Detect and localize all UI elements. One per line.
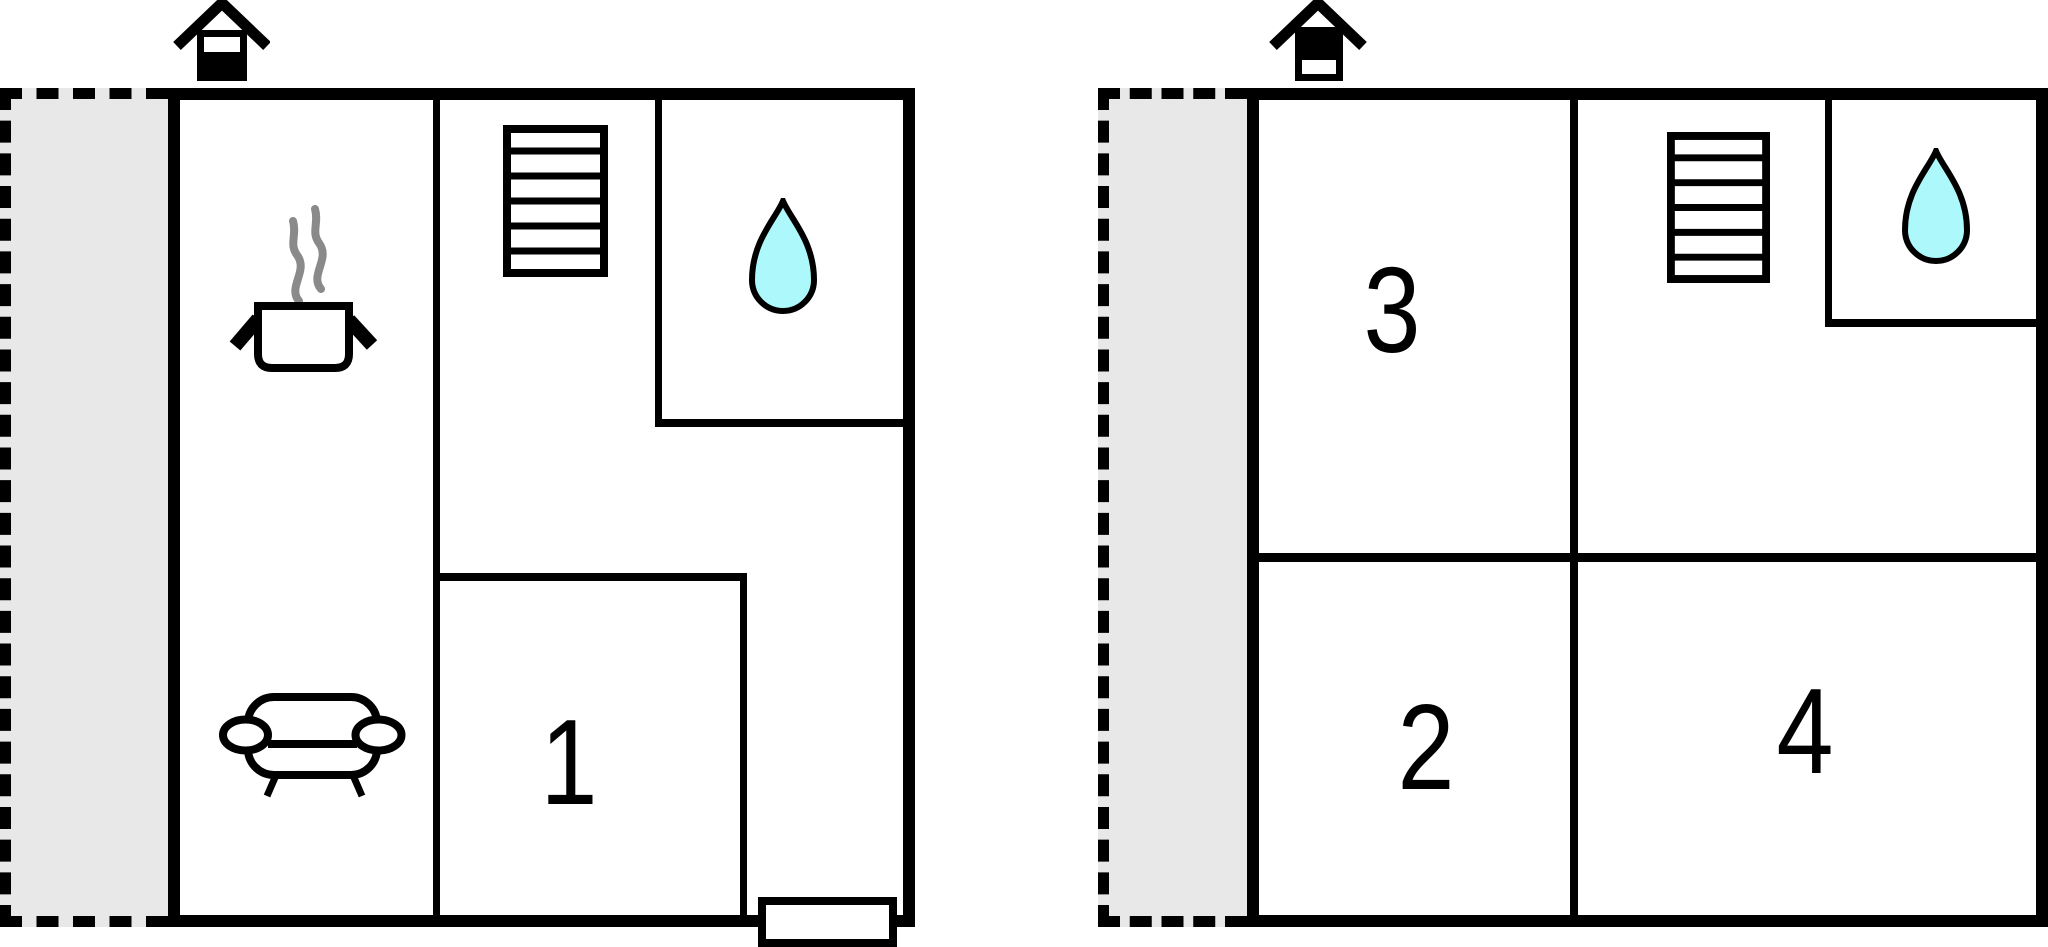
cooking-pot-icon bbox=[225, 205, 385, 375]
wall bbox=[440, 573, 747, 581]
wall bbox=[1259, 553, 2036, 562]
wall bbox=[1825, 100, 1832, 327]
wall bbox=[1570, 100, 1578, 915]
room-3-label: 3 bbox=[1333, 245, 1451, 375]
fireplace-chimney-icon bbox=[170, 0, 270, 85]
room-1-label: 1 bbox=[510, 697, 628, 827]
terrace-area bbox=[1098, 88, 1247, 927]
staircase-icon bbox=[1667, 132, 1770, 283]
staircase-icon bbox=[503, 125, 608, 277]
sofa-icon bbox=[213, 683, 413, 803]
terrace-area bbox=[0, 88, 168, 927]
water-drop-icon bbox=[749, 198, 817, 316]
water-drop-icon bbox=[1902, 148, 1970, 266]
entrance-step bbox=[758, 897, 897, 947]
floor-plan: 1 3 2 4 bbox=[0, 0, 2048, 947]
fireplace-chimney-icon bbox=[1268, 0, 1368, 85]
wall bbox=[655, 100, 662, 427]
room-2-label: 2 bbox=[1367, 682, 1485, 812]
wall bbox=[740, 573, 747, 915]
room-4-label: 4 bbox=[1746, 666, 1864, 796]
wall bbox=[433, 100, 440, 915]
wall bbox=[1832, 319, 2036, 327]
wall bbox=[655, 419, 903, 427]
